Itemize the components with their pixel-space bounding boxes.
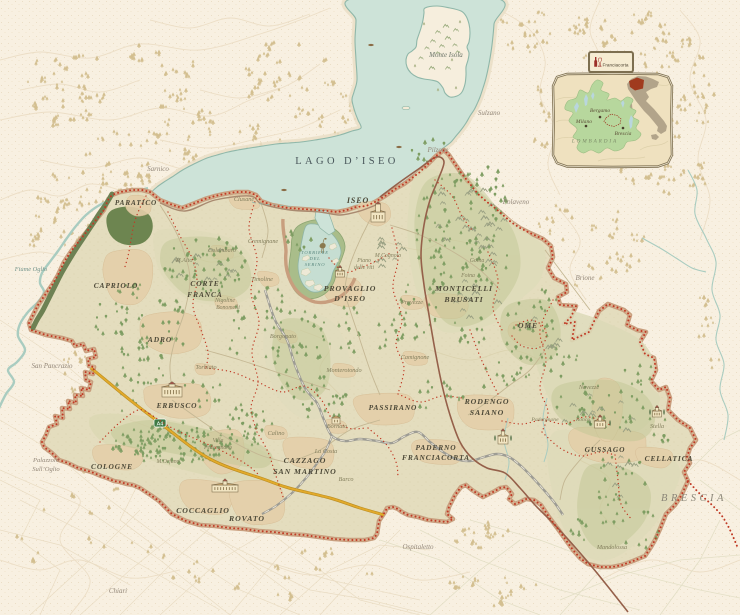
svg-text:San Pancrazio: San Pancrazio [31,362,73,370]
svg-text:Pedergnano: Pedergnano [203,445,232,451]
svg-text:Provezze: Provezze [400,299,423,306]
svg-text:PASSIRANO: PASSIRANO [369,403,418,412]
svg-text:Fiume Oglio: Fiume Oglio [14,266,47,273]
svg-text:Brescia: Brescia [615,131,632,137]
svg-text:CAPRIOLO: CAPRIOLO [94,281,139,290]
svg-text:LAGO D’ISEO: LAGO D’ISEO [295,156,399,167]
svg-text:Chiari: Chiari [109,587,127,595]
svg-text:CORTE: CORTE [190,279,219,288]
svg-text:Pilzone: Pilzone [427,146,449,154]
svg-text:Padergnone: Padergnone [530,417,559,423]
svg-text:PROVAGLIO: PROVAGLIO [324,284,377,293]
svg-text:Bergamo: Bergamo [590,108,611,114]
svg-text:Clusane: Clusane [234,196,255,203]
svg-text:M.Cognolo: M.Cognolo [374,253,401,259]
svg-text:Barco: Barco [339,476,354,483]
svg-text:TORBIERE: TORBIERE [301,250,329,255]
svg-text:FRANCIACORTA: FRANCIACORTA [402,453,470,462]
svg-text:Sull’Oglio: Sull’Oglio [32,466,60,473]
svg-text:CAZZAGO: CAZZAGO [284,456,327,465]
svg-text:ERBUSCO: ERBUSCO [156,401,198,410]
svg-text:Calino: Calino [268,430,285,437]
svg-text:BRUSATI: BRUSATI [443,295,483,304]
svg-text:Polaveno: Polaveno [502,198,530,206]
svg-text:Sulzano: Sulzano [478,109,501,117]
svg-text:Navezze: Navezze [578,384,600,391]
svg-text:Cremignane: Cremignane [248,238,279,245]
svg-text:COLOGNE: COLOGNE [91,462,133,471]
svg-text:Monterotondo: Monterotondo [325,367,361,374]
svg-text:Bornato: Bornato [327,423,347,430]
svg-text:ROVATO: ROVATO [228,514,265,523]
svg-text:RODENGO: RODENGO [464,397,510,406]
svg-text:SEBINO: SEBINO [305,262,326,267]
svg-text:Foina: Foina [460,273,475,279]
svg-text:Piano: Piano [356,258,371,264]
svg-text:Franciacorta: Franciacorta [602,63,628,68]
svg-text:CELLATICA: CELLATICA [645,454,694,463]
svg-text:Brione: Brione [575,274,594,282]
svg-text:Timoline: Timoline [251,276,273,283]
svg-text:Palazzolo: Palazzolo [32,457,60,464]
svg-text:Milano: Milano [575,119,592,125]
svg-text:PARATICO: PARATICO [115,199,157,207]
svg-text:MONTICELLI: MONTICELLI [434,284,493,293]
svg-text:M.Orfano: M.Orfano [155,458,179,465]
svg-text:DEL: DEL [308,256,320,261]
svg-text:BRESCIA: BRESCIA [661,493,727,504]
svg-text:Mandolossa: Mandolossa [596,544,627,551]
svg-text:GUSSAGO: GUSSAGO [585,445,626,454]
svg-text:Ospitaletto: Ospitaletto [402,543,434,551]
svg-text:SAN MARTINO: SAN MARTINO [273,467,336,476]
svg-text:Stella: Stella [650,423,664,430]
svg-text:Colombaro: Colombaro [208,247,236,254]
svg-text:ADRO: ADRO [147,335,172,344]
svg-text:Torbiato: Torbiato [195,364,216,371]
svg-text:OME: OME [518,321,538,330]
svg-text:PADERNO: PADERNO [415,443,456,452]
svg-text:delle viti: delle viti [354,265,375,271]
svg-text:Nigoline: Nigoline [214,298,235,304]
svg-text:Bonomelli: Bonomelli [216,305,240,311]
svg-text:D’ISEO: D’ISEO [333,294,366,303]
svg-text:Sarnico: Sarnico [147,165,169,173]
svg-text:M.Alto: M.Alto [174,257,192,264]
svg-text:La Costa: La Costa [314,448,338,455]
svg-text:LOMBARDIA: LOMBARDIA [571,139,618,145]
svg-text:ISEO: ISEO [346,196,369,205]
svg-text:A4: A4 [157,422,164,428]
svg-text:Ronco: Ronco [575,417,590,423]
svg-text:Borgonato: Borgonato [270,333,296,340]
svg-text:Monte Isola: Monte Isola [428,51,463,59]
svg-text:Golna: Golna [470,258,485,264]
svg-text:Camignone: Camignone [401,354,430,361]
svg-text:Villa: Villa [213,438,224,444]
svg-text:SAIANO: SAIANO [470,408,504,417]
svg-text:COCCAGLIO: COCCAGLIO [176,506,230,515]
